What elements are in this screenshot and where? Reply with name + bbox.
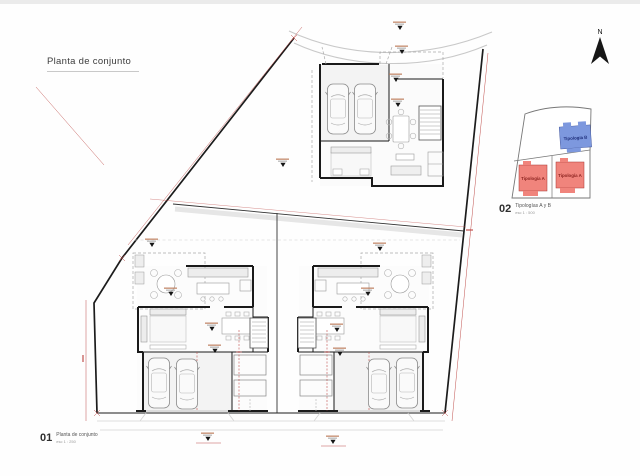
car-icon bbox=[353, 84, 378, 134]
north-arrow: N bbox=[582, 24, 618, 68]
page-title: Planta de conjunto bbox=[47, 56, 139, 72]
sidewalk-lines bbox=[97, 413, 445, 430]
architectural-sheet: N Tipología B Tipología A Tipología A Pl… bbox=[0, 0, 640, 476]
key-plan: Tipología B Tipología A Tipología A bbox=[500, 98, 600, 206]
car-icon bbox=[175, 359, 200, 409]
unit-a-left-plan bbox=[133, 253, 268, 412]
key-unit-a-right: Tipología A bbox=[556, 158, 584, 193]
sheet-number: 02 bbox=[499, 204, 511, 214]
unit-b-living-furniture bbox=[331, 147, 371, 176]
sheet-label-02: 02 Tipologías A y B esc 1 : 500 bbox=[499, 204, 551, 215]
division-shadow bbox=[175, 209, 462, 235]
key-unit-a-left-label: Tipología A bbox=[521, 176, 545, 181]
sheet-scale: esc 1 : 250 bbox=[56, 439, 97, 444]
unit-a-right-plan bbox=[298, 253, 433, 412]
road-curve bbox=[289, 31, 492, 64]
sheet-title: Tipologías A y B bbox=[515, 204, 551, 209]
key-unit-a-left: Tipología A bbox=[519, 161, 547, 196]
unit-b-stairs bbox=[419, 106, 441, 140]
unit-a-dining-table bbox=[222, 312, 250, 340]
sheet-label-01: 01 Planta de conjunto esc 1 : 250 bbox=[40, 433, 98, 444]
sheet-title: Planta de conjunto bbox=[56, 433, 97, 438]
sheet-scale: esc 1 : 500 bbox=[515, 210, 551, 215]
unit-a-stairs bbox=[250, 318, 268, 348]
unit-b-plan bbox=[312, 47, 444, 186]
car-icon bbox=[326, 84, 351, 134]
key-unit-a-right-label: Tipología A bbox=[558, 173, 582, 178]
north-arrow-icon bbox=[591, 37, 609, 64]
car-icon bbox=[147, 358, 172, 408]
north-label: N bbox=[597, 29, 602, 36]
sheet-number: 01 bbox=[40, 433, 52, 443]
